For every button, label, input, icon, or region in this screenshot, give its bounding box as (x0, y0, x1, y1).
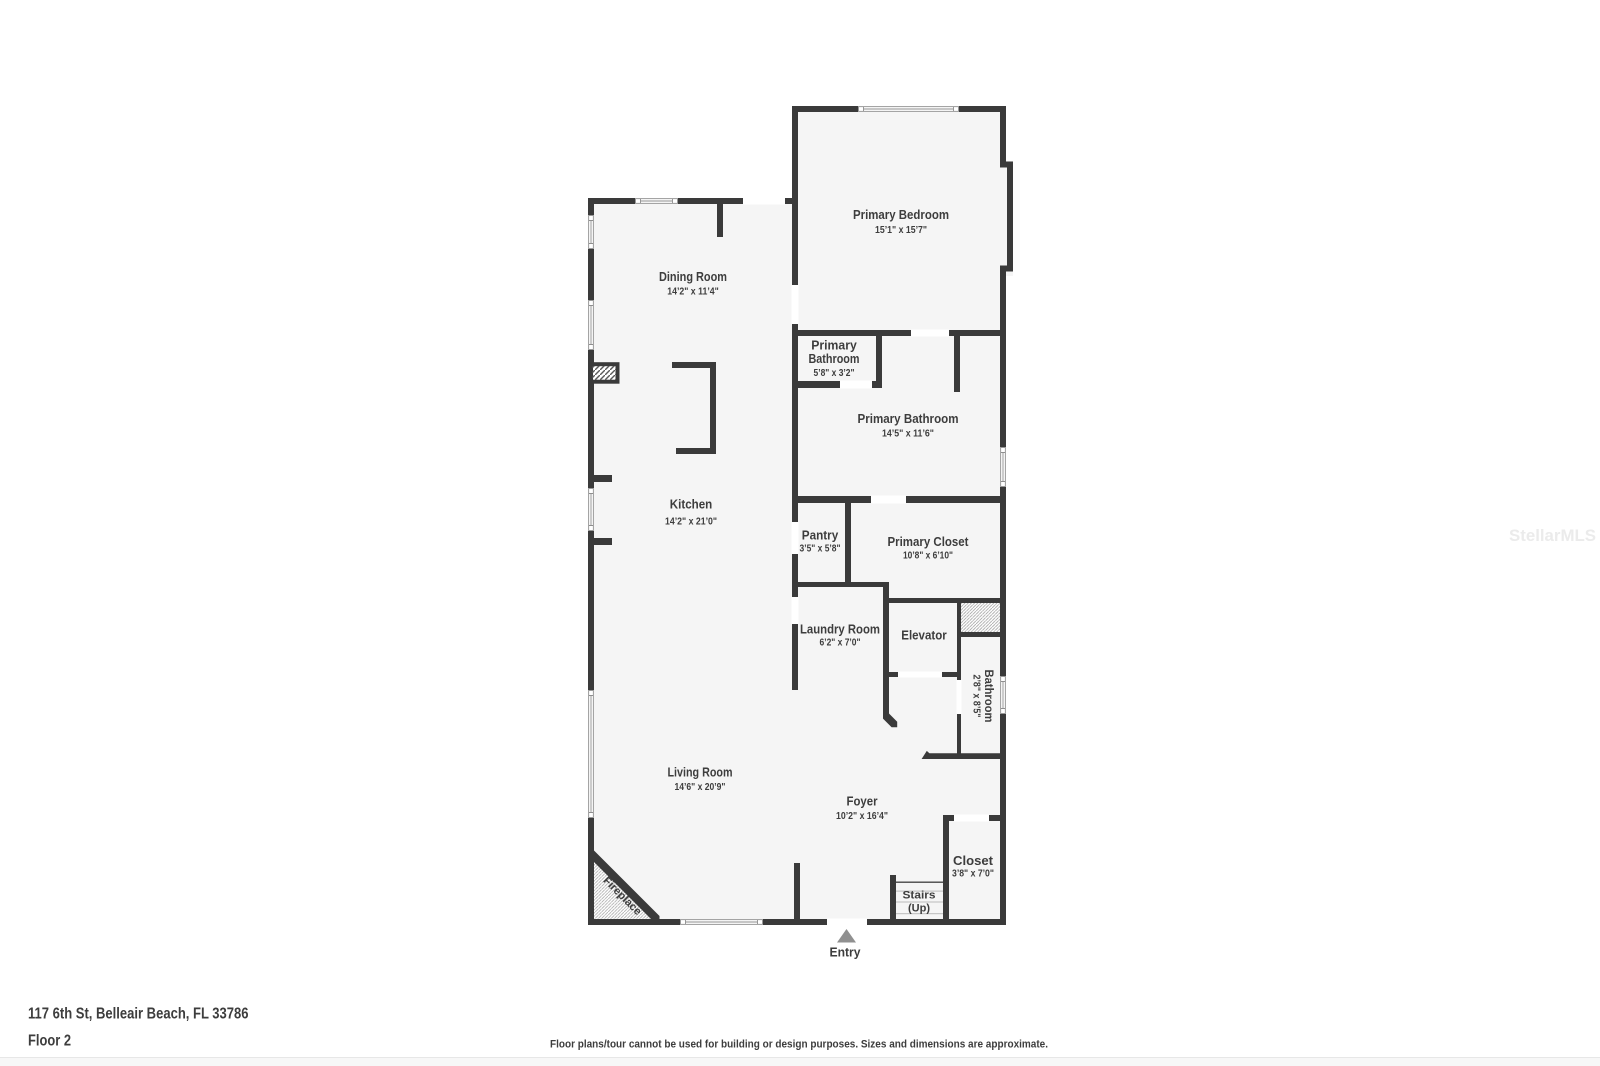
svg-text:6’2" x 7’0": 6’2" x 7’0" (820, 637, 861, 649)
svg-text:5’8" x 3’2": 5’8" x 3’2" (814, 367, 855, 379)
svg-text:Kitchen: Kitchen (670, 497, 713, 512)
svg-text:Elevator: Elevator (901, 629, 947, 643)
svg-text:117 6th St, Belleair Beach, FL: 117 6th St, Belleair Beach, FL 33786 (28, 1006, 249, 1023)
svg-text:Floor 2: Floor 2 (28, 1033, 71, 1050)
svg-text:Bathroom: Bathroom (982, 670, 994, 723)
svg-text:14’5" x 11’6": 14’5" x 11’6" (882, 428, 934, 440)
svg-text:(Up): (Up) (908, 903, 930, 915)
svg-text:Primary: Primary (811, 339, 857, 353)
svg-text:10’2" x 16’4": 10’2" x 16’4" (836, 810, 888, 822)
svg-text:Floor plans/tour cannot be use: Floor plans/tour cannot be used for buil… (550, 1039, 1048, 1051)
svg-text:Pantry: Pantry (802, 529, 839, 543)
svg-text:Dining Room: Dining Room (659, 269, 727, 284)
svg-text:Stairs: Stairs (903, 890, 936, 902)
svg-text:Living Room: Living Room (668, 765, 733, 780)
svg-text:Primary Bedroom: Primary Bedroom (853, 207, 949, 222)
svg-text:2’8" x 8’5": 2’8" x 8’5" (971, 675, 983, 718)
svg-text:Bathroom: Bathroom (809, 352, 860, 366)
svg-text:Foyer: Foyer (847, 794, 878, 809)
svg-text:14’2" x 11’4": 14’2" x 11’4" (667, 286, 719, 298)
svg-text:Entry: Entry (830, 946, 861, 960)
svg-text:14’2" x 21’0": 14’2" x 21’0" (665, 516, 717, 528)
svg-text:15’1" x 15’7": 15’1" x 15’7" (875, 224, 927, 236)
svg-text:Primary Bathroom: Primary Bathroom (858, 411, 959, 426)
svg-text:3’5" x 5’8": 3’5" x 5’8" (800, 543, 841, 555)
svg-text:Laundry Room: Laundry Room (800, 623, 880, 637)
svg-text:14’6" x 20’9": 14’6" x 20’9" (675, 781, 726, 793)
svg-text:StellarMLS: StellarMLS (1509, 527, 1596, 545)
svg-text:10’8" x 6’10": 10’8" x 6’10" (903, 550, 953, 562)
svg-text:Closet: Closet (953, 854, 994, 868)
svg-text:3’8" x 7’0": 3’8" x 7’0" (952, 868, 994, 880)
svg-text:Primary Closet: Primary Closet (888, 535, 970, 549)
